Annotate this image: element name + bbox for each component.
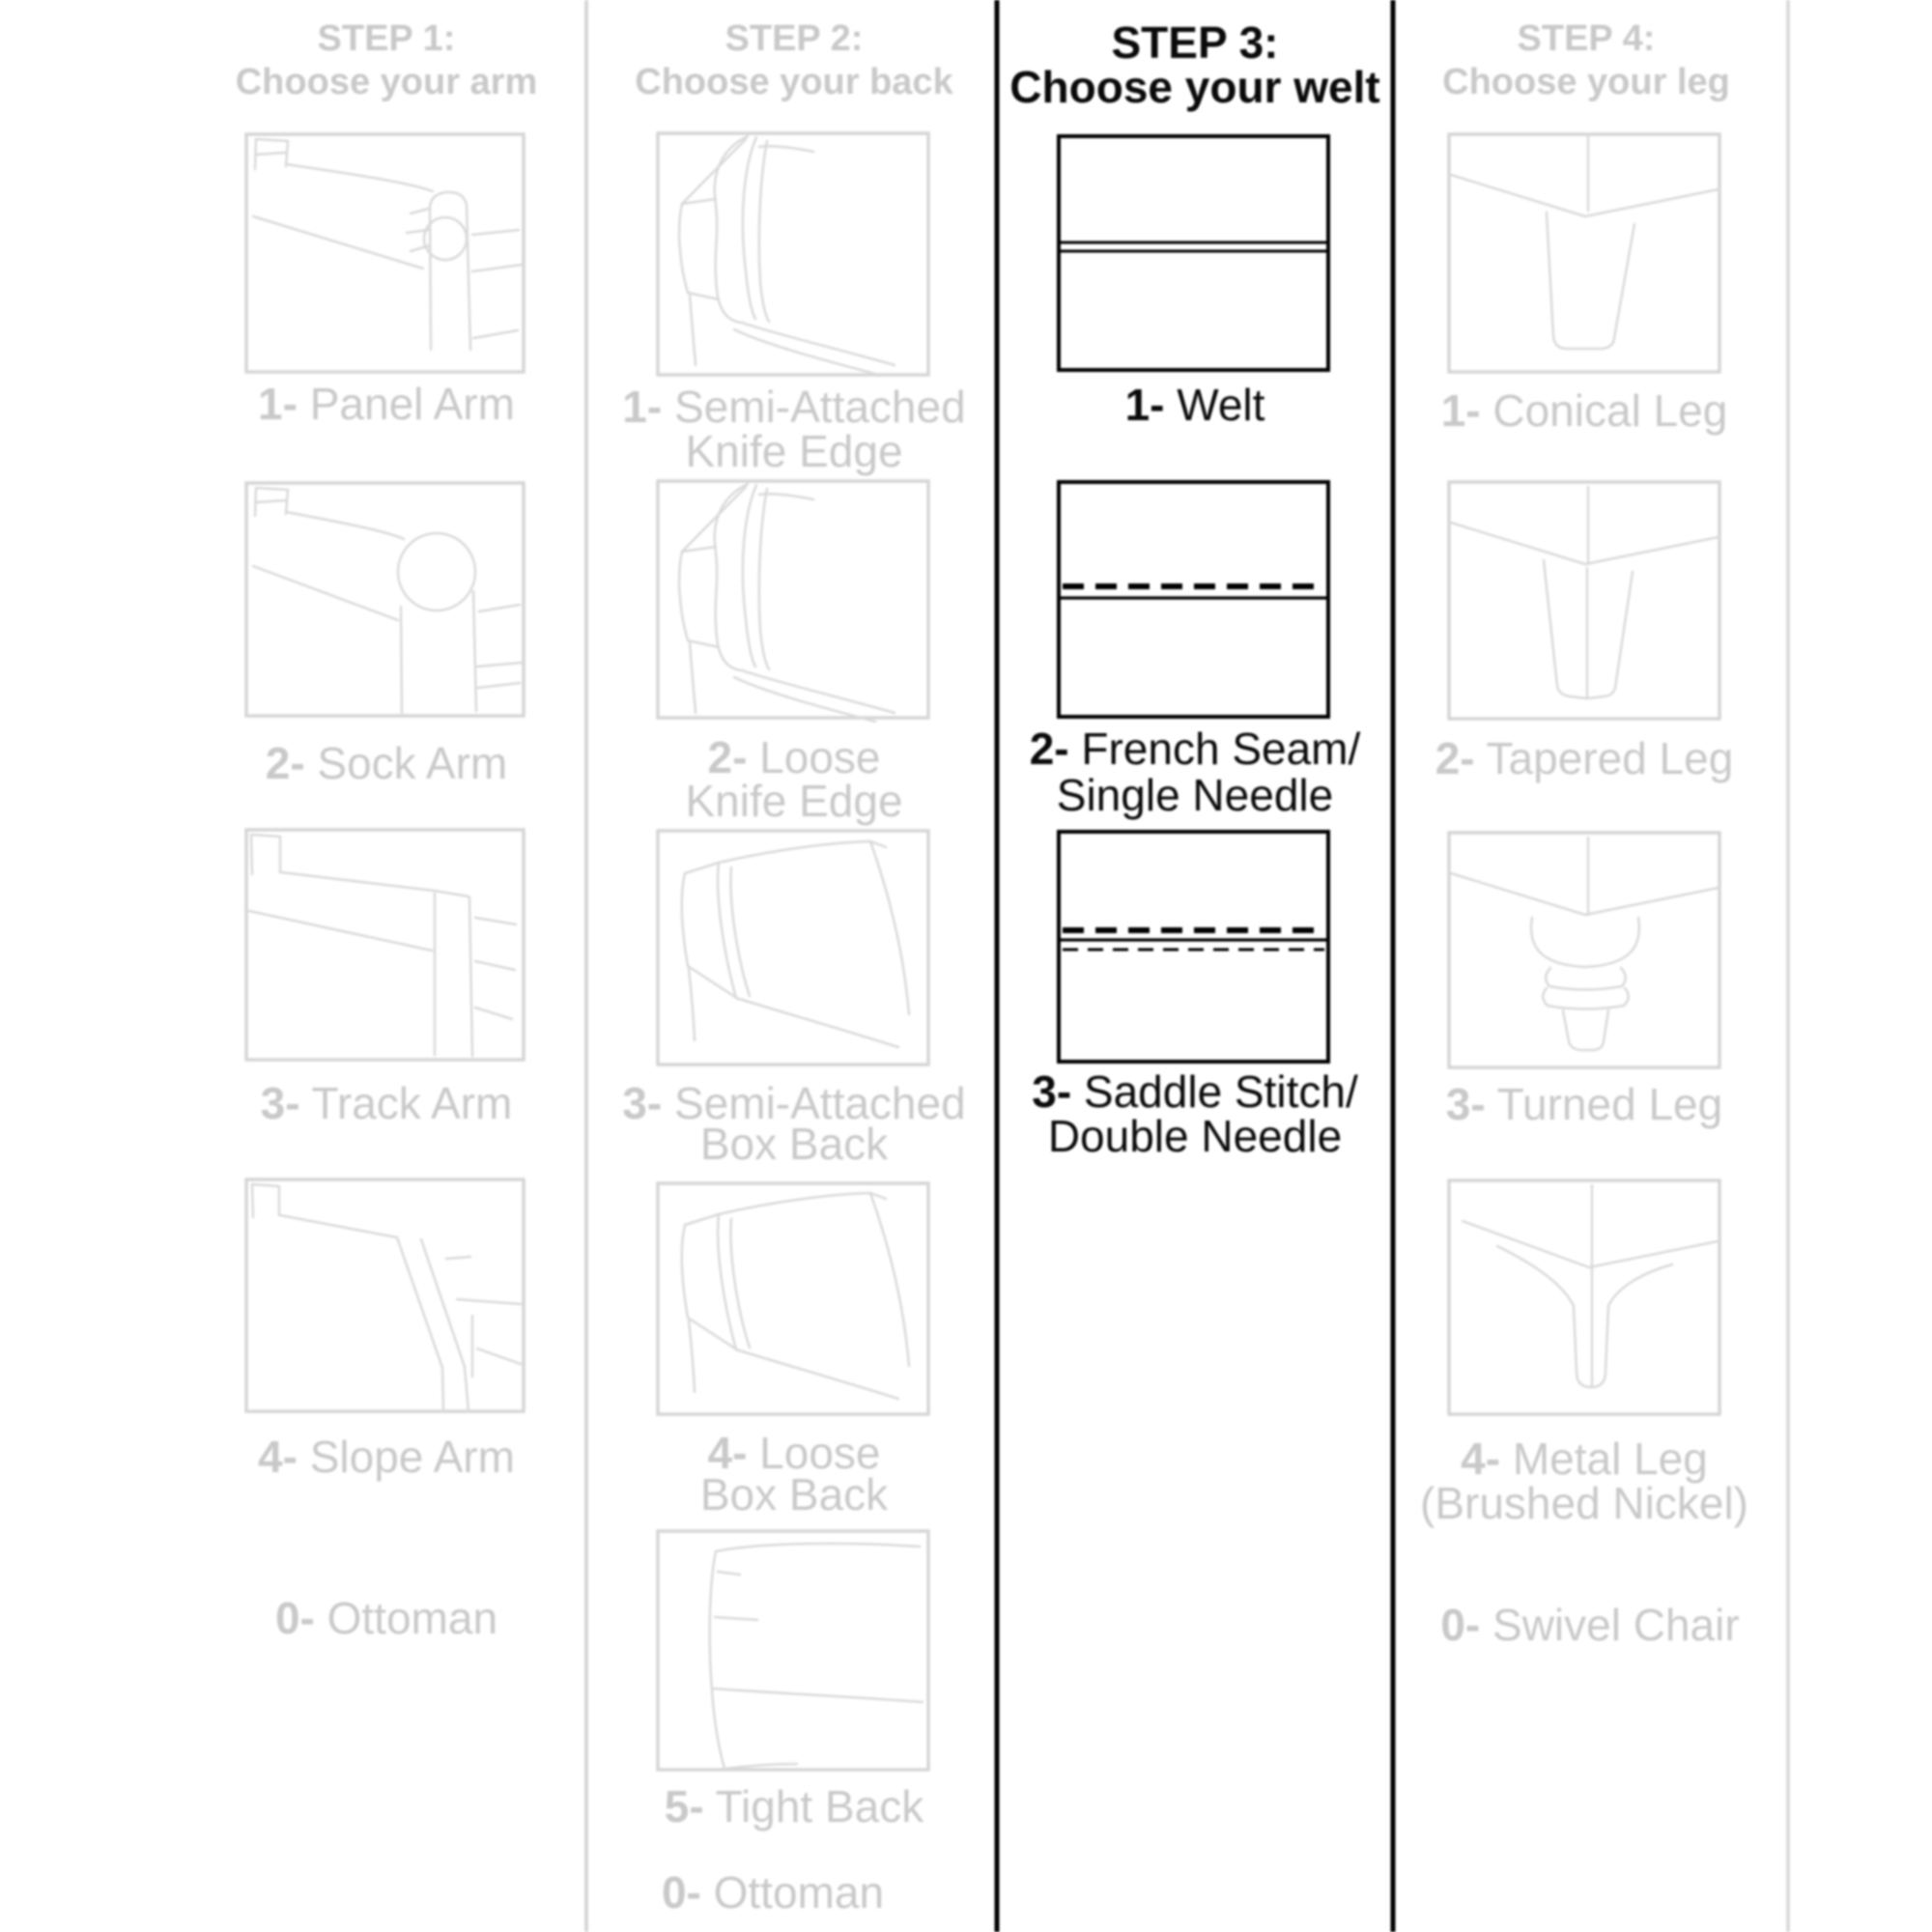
svg-text:Choose your leg: Choose your leg (1442, 62, 1730, 102)
svg-text:STEP 4:: STEP 4: (1518, 18, 1656, 59)
svg-text:3- Track Arm: 3- Track Arm (261, 1078, 513, 1128)
svg-text:Knife Edge: Knife Edge (685, 426, 902, 476)
svg-text:Box Back: Box Back (700, 1119, 889, 1169)
svg-text:1- Conical Leg: 1- Conical Leg (1441, 385, 1728, 436)
svg-text:Single Needle: Single Needle (1057, 770, 1333, 820)
svg-text:STEP 3:: STEP 3: (1112, 17, 1279, 68)
svg-text:3- Turned Leg: 3- Turned Leg (1446, 1079, 1722, 1129)
svg-text:1- Panel Arm: 1- Panel Arm (258, 379, 515, 429)
svg-text:STEP 1:: STEP 1: (318, 18, 456, 59)
svg-text:1- Welt: 1- Welt (1125, 380, 1265, 430)
svg-text:0- Ottoman: 0- Ottoman (662, 1867, 884, 1918)
svg-text:0- Ottoman: 0- Ottoman (275, 1593, 497, 1643)
svg-text:3- Saddle Stitch/: 3- Saddle Stitch/ (1032, 1066, 1358, 1117)
svg-text:Choose your arm: Choose your arm (236, 62, 538, 102)
svg-text:2- French Seam/: 2- French Seam/ (1030, 724, 1361, 774)
svg-text:0- Swivel Chair: 0- Swivel Chair (1440, 1600, 1739, 1650)
svg-text:Choose your welt: Choose your welt (1009, 62, 1379, 112)
svg-text:Double Needle: Double Needle (1048, 1111, 1342, 1161)
svg-text:(Brushed Nickel): (Brushed Nickel) (1420, 1478, 1748, 1528)
svg-text:Knife Edge: Knife Edge (685, 776, 902, 826)
svg-text:STEP 2:: STEP 2: (725, 18, 864, 59)
svg-text:Box Back: Box Back (700, 1469, 889, 1520)
svg-text:2- Tapered Leg: 2- Tapered Leg (1435, 733, 1734, 783)
svg-text:4- Metal Leg: 4- Metal Leg (1461, 1434, 1708, 1484)
svg-text:5- Tight Back: 5- Tight Back (665, 1781, 924, 1832)
svg-text:2- Sock Arm: 2- Sock Arm (266, 738, 508, 788)
svg-text:4- Slope Arm: 4- Slope Arm (258, 1432, 515, 1482)
svg-text:Choose your back: Choose your back (635, 62, 953, 102)
svg-text:1- Semi-Attached: 1- Semi-Attached (622, 382, 965, 432)
